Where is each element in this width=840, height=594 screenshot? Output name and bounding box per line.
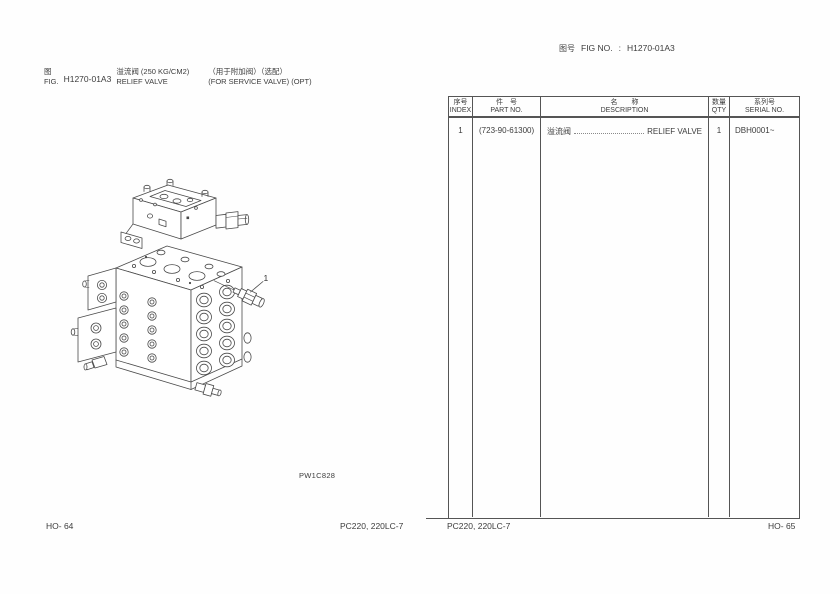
col-header-serial-no: 系列号 SERIAL NO. bbox=[730, 97, 799, 116]
callout-leader-line bbox=[251, 282, 264, 293]
cell-serial-no: DBH0001~ bbox=[730, 118, 799, 517]
title-part-name: 溢流阀 (250 KG/CM2) RELIEF VALVE bbox=[116, 67, 189, 87]
parts-table-row: 1 (723-90-61300) 溢流阀 RELIEF VALVE 1 DBH0… bbox=[449, 118, 799, 517]
upper-valve-block bbox=[121, 179, 249, 248]
cell-qty: 1 bbox=[709, 118, 730, 517]
col-header-part-no: 件 号 PART NO. bbox=[473, 97, 541, 116]
title-fig-labels: 图 FIG. bbox=[44, 67, 59, 87]
footer-rule bbox=[426, 518, 800, 519]
drawing-code: PW1C828 bbox=[299, 471, 335, 480]
title-opt-cjk: （用于附加阀）（选配） bbox=[208, 67, 311, 77]
left-model-label: PC220, 220LC-7 bbox=[340, 521, 403, 531]
title-fig-en: FIG. bbox=[44, 77, 59, 87]
col-header-description: 名 称 DESCRIPTION bbox=[541, 97, 709, 116]
fig-no-value: H1270-01A3 bbox=[627, 43, 675, 53]
right-page-number: HO- 65 bbox=[768, 521, 795, 531]
title-name-cjk: 溢流阀 (250 KG/CM2) bbox=[116, 67, 189, 77]
parts-table-header-row: 序号 INDEX 件 号 PART NO. 名 称 DESCRIPTION 数量… bbox=[449, 97, 799, 118]
description-en: RELIEF VALVE bbox=[647, 127, 702, 136]
cell-description: 溢流阀 RELIEF VALVE bbox=[541, 118, 709, 517]
title-fig-cjk: 图 bbox=[44, 67, 59, 77]
fig-no-colon: : bbox=[619, 43, 621, 53]
cell-index: 1 bbox=[449, 118, 473, 517]
parts-table: 序号 INDEX 件 号 PART NO. 名 称 DESCRIPTION 数量… bbox=[448, 96, 800, 518]
title-option-note: （用于附加阀）（选配） (FOR SERVICE VALVE) (OPT) bbox=[208, 67, 311, 87]
dotted-leader bbox=[574, 133, 644, 134]
callout-1-label: 1 bbox=[264, 273, 269, 283]
cell-part-no: (723-90-61300) bbox=[473, 118, 541, 517]
fig-no-label-en: FIG NO. bbox=[581, 43, 613, 53]
right-model-label: PC220, 220LC-7 bbox=[447, 521, 510, 531]
col-header-index: 序号 INDEX bbox=[449, 97, 473, 116]
valve-assembly-drawing: 1 bbox=[60, 175, 350, 465]
fig-no-label-cjk: 图号 bbox=[559, 43, 575, 54]
title-fig-no: H1270-01A3 bbox=[64, 74, 112, 84]
title-opt-en: (FOR SERVICE VALVE) (OPT) bbox=[208, 77, 311, 87]
left-page-number: HO- 64 bbox=[46, 521, 73, 531]
fig-no-header: 图号 FIG NO. : H1270-01A3 bbox=[559, 43, 675, 54]
description-cjk: 溢流阀 bbox=[547, 126, 571, 137]
catalog-page: 图号 FIG NO. : H1270-01A3 图 FIG. H1270-01A… bbox=[0, 0, 840, 594]
col-header-qty: 数量 QTY bbox=[709, 97, 730, 116]
lower-valve-block bbox=[71, 246, 251, 399]
title-name-en: RELIEF VALVE bbox=[116, 77, 189, 87]
title-block: 图 FIG. H1270-01A3 溢流阀 (250 KG/CM2) RELIE… bbox=[44, 67, 312, 87]
